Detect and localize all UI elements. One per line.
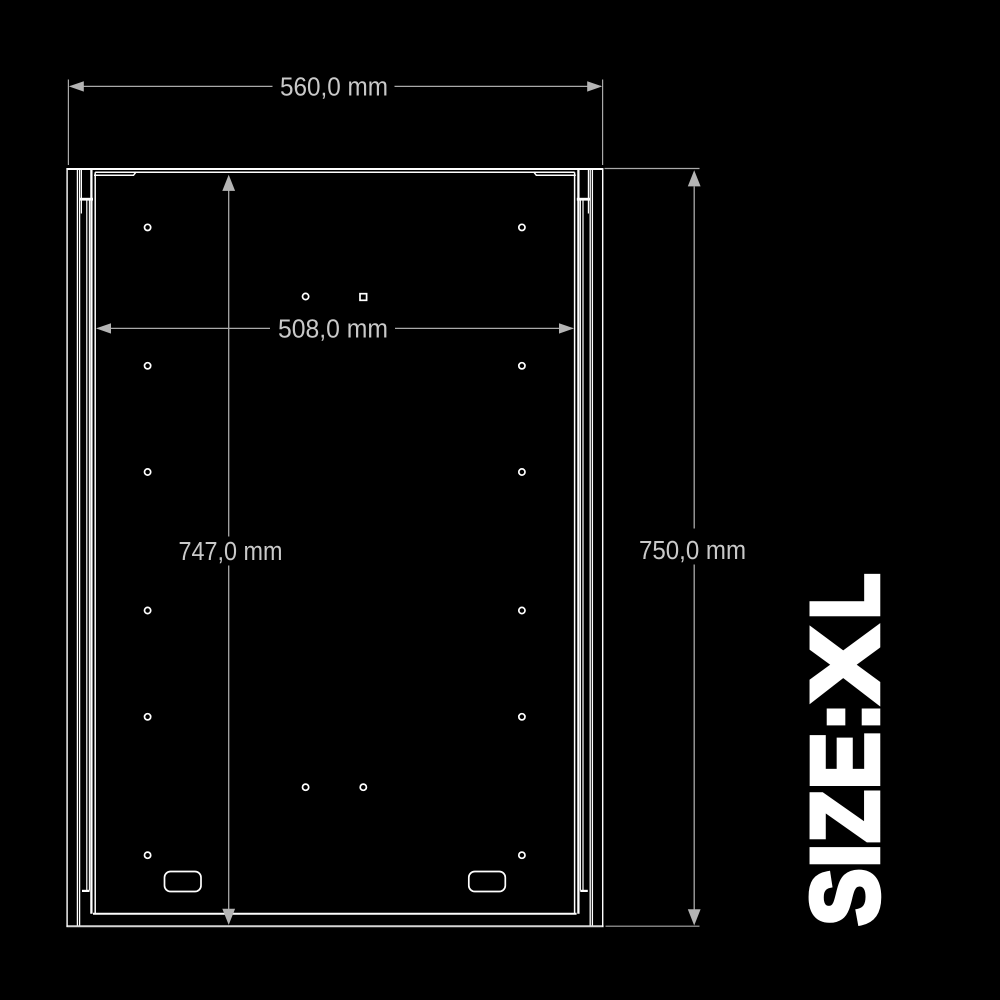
svg-text:X: X (792, 628, 898, 702)
svg-text:747,0 mm: 747,0 mm (179, 538, 283, 566)
svg-text:750,0 mm: 750,0 mm (639, 537, 746, 565)
svg-text:SIZE:: SIZE: (792, 702, 898, 926)
svg-text:L: L (793, 574, 899, 619)
svg-text:560,0 mm: 560,0 mm (280, 73, 388, 101)
svg-text:508,0 mm: 508,0 mm (278, 315, 388, 343)
